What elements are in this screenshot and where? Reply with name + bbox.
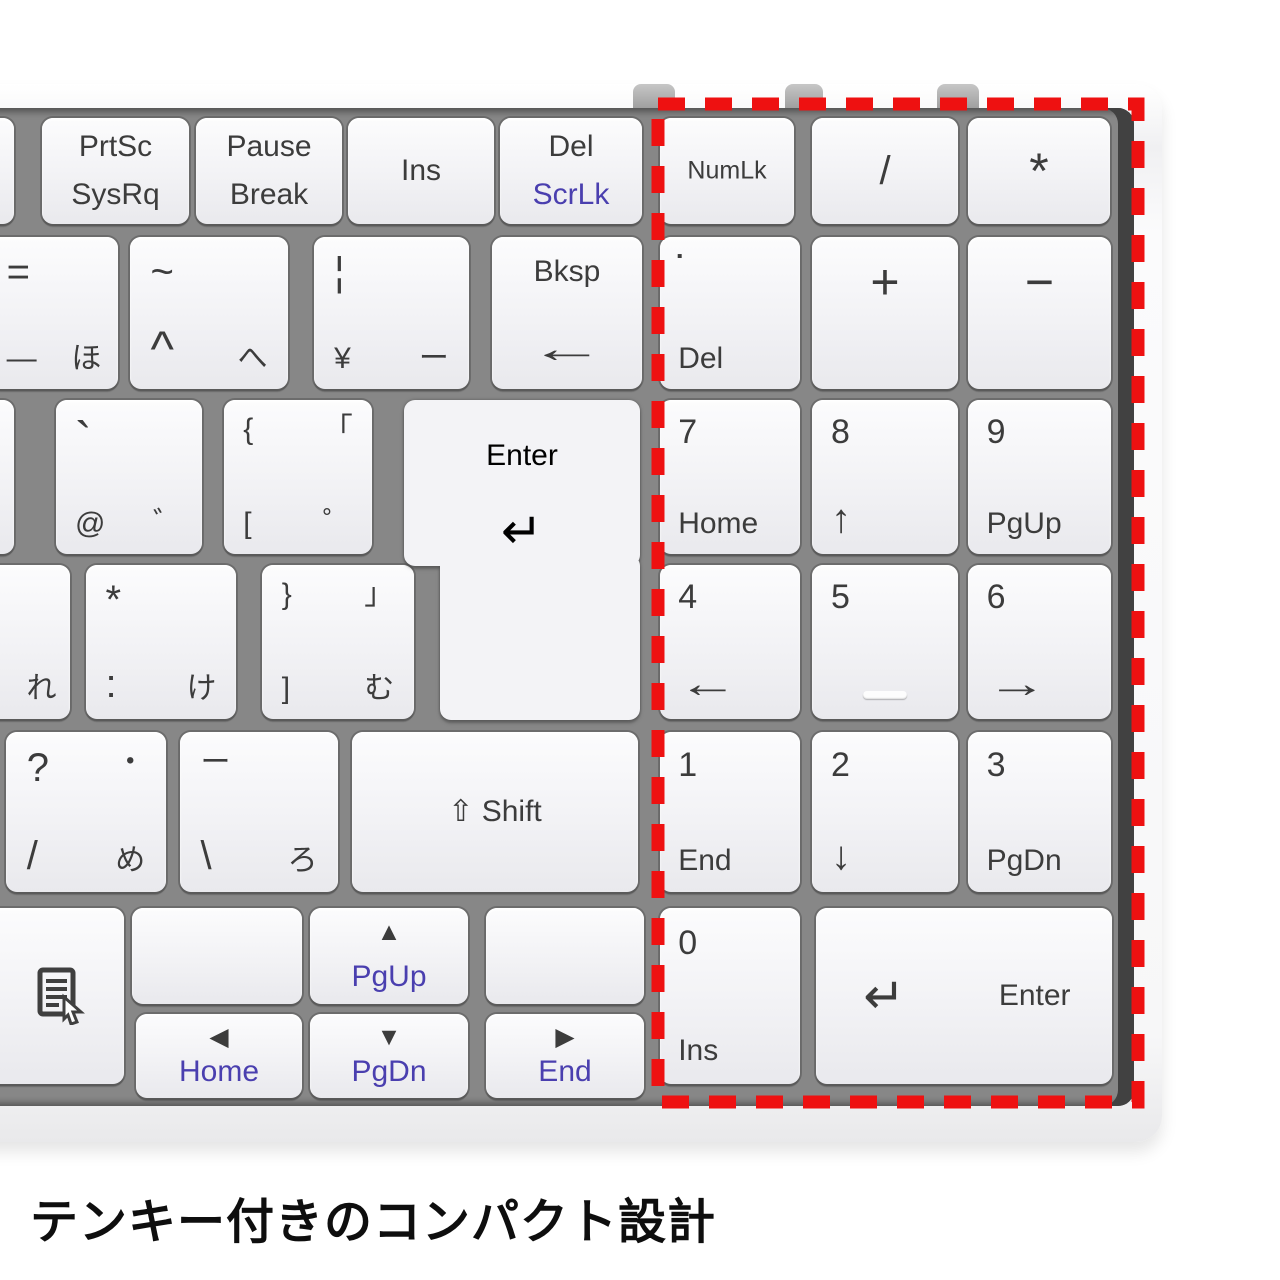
key-del-scrlk: DelScrLk	[500, 118, 642, 224]
key-label: ^	[151, 324, 174, 374]
key-label: Bksp	[534, 257, 601, 287]
key-label: *	[1029, 146, 1048, 196]
key-np-minus: −	[968, 237, 1111, 389]
key-label: Ins	[678, 1036, 718, 1066]
key-label: ]	[282, 674, 290, 704]
key-blank-right	[486, 908, 644, 1004]
key-np-6: →6	[968, 565, 1111, 719]
key-label: ←	[529, 329, 605, 369]
key-label: ・	[115, 748, 145, 778]
key-at-dakuten: `@゛	[56, 400, 202, 554]
enter-key-part: Enter↵	[404, 400, 640, 566]
key-bracket-open: {「[゜	[224, 400, 372, 554]
key-caret-he: ~^へ	[130, 237, 288, 389]
key-label: Break	[230, 180, 308, 210]
key-label: Del	[548, 132, 593, 162]
key-np-enter: ↵Enter	[816, 908, 1112, 1084]
key-label: =	[7, 252, 30, 292]
key-label: ?	[27, 748, 49, 788]
key-np-multiply: *	[968, 118, 1110, 224]
key-label: →	[987, 664, 1047, 704]
key-label: Enter	[999, 981, 1071, 1011]
key-label: ゛	[153, 509, 183, 539]
key-label: ↑	[831, 499, 851, 539]
key-np-7: 7Home	[660, 400, 800, 554]
key-menu	[0, 908, 124, 1084]
caption: テンキー付きのコンパクト設計	[30, 1182, 716, 1252]
key-label: 8	[831, 415, 850, 449]
key-label: Ins	[401, 156, 441, 186]
key-label: End	[538, 1057, 591, 1087]
keyboard-photo: PrtScSysRqPauseBreakInsDelScrLk=—ほ~^へ¦¥ー…	[0, 0, 1280, 1280]
key-label: /	[27, 836, 38, 876]
key-label: Home	[179, 1057, 259, 1087]
key-label: 0	[678, 926, 697, 960]
key-np-2: 2↓	[812, 732, 958, 892]
key-label: [	[243, 509, 251, 539]
key-label: Enter	[486, 441, 558, 471]
context-menu-icon	[35, 967, 87, 1025]
key-label: ー	[419, 344, 449, 374]
key-label: }	[282, 580, 292, 610]
key-numlk: NumLk	[660, 118, 794, 224]
key-ins: Ins	[348, 118, 494, 224]
key-np-9: 9PgUp	[968, 400, 1111, 554]
key-ro: ー\ろ	[180, 732, 338, 892]
key-label: 5	[831, 580, 850, 614]
key-left-home: ◀Home	[136, 1014, 302, 1098]
key-yen-bar: ¦¥ー	[314, 237, 469, 389]
key-bracket-close: }」]む	[262, 565, 414, 719]
key-label: PgDn	[987, 846, 1062, 876]
key-label: ScrLk	[533, 180, 610, 210]
key-label: ←	[678, 664, 738, 704]
key-label: ろ	[287, 846, 317, 876]
key-label: め	[115, 846, 145, 876]
key-question-me: ?・/め	[6, 732, 166, 892]
key-edge-sliver-top	[0, 118, 14, 224]
top-edge-tab	[785, 84, 823, 111]
key-label: @	[75, 509, 105, 539]
key-label: \	[201, 836, 212, 876]
key-label: ▶	[555, 1025, 574, 1050]
key-label: ¦	[334, 252, 344, 292]
key-label: {	[243, 415, 253, 445]
key-label: Del	[678, 344, 723, 374]
key-label: ◀	[209, 1025, 228, 1050]
key-label: `	[75, 415, 92, 465]
key-blank-left	[132, 908, 302, 1004]
key-np-divide: /	[812, 118, 958, 224]
top-edge-tab	[937, 84, 979, 111]
enter-key-part	[440, 555, 640, 720]
key-label: ー	[201, 748, 231, 778]
top-edge-tab	[633, 84, 675, 111]
key-label: ↵	[501, 506, 543, 556]
key-edge-sliver-mid	[0, 400, 14, 554]
key-label: ~	[151, 252, 174, 292]
key-label: Pause	[226, 132, 311, 162]
key-label: Home	[678, 509, 758, 539]
key-label: け	[187, 674, 217, 704]
key-label: 4	[678, 580, 697, 614]
key-minus-ho: =—ほ	[0, 237, 118, 389]
key-label: 7	[678, 415, 697, 449]
key-label: PgUp	[351, 962, 426, 992]
key-label: −	[1025, 257, 1054, 307]
key-label: ▲	[377, 920, 402, 945]
key-pause-break: PauseBreak	[196, 118, 342, 224]
key-label: :	[106, 664, 117, 704]
key-label: PrtSc	[79, 132, 152, 162]
key-label: ほ	[71, 344, 101, 374]
key-label: 1	[678, 748, 697, 782]
key-label: SysRq	[71, 180, 159, 210]
key-label: 6	[987, 580, 1006, 614]
key-enter-main: Enter↵	[404, 400, 640, 720]
key-re: れ	[0, 565, 70, 719]
key-np-4: ←4	[660, 565, 800, 719]
key-label: へ	[237, 344, 267, 374]
key-label: NumLk	[687, 159, 766, 184]
key-label: 2	[831, 748, 850, 782]
key-label: +	[870, 257, 899, 307]
key-label: End	[678, 846, 731, 876]
key-label: ⇧ Shift	[448, 797, 542, 827]
key-shift: ⇧ Shift	[352, 732, 638, 892]
key-label: ↵	[863, 971, 905, 1021]
key-label: む	[364, 674, 394, 704]
key-label: PgDn	[351, 1057, 426, 1087]
key-label: 「	[323, 415, 353, 445]
key-label: *	[106, 580, 122, 620]
key-label: —	[7, 344, 37, 374]
key-colon-ke: *:け	[86, 565, 236, 719]
key-bksp: Bksp←	[492, 237, 642, 389]
key-np-plus: +	[812, 237, 958, 389]
key-np-del: ▪Del	[660, 237, 800, 389]
key-label	[863, 691, 907, 699]
key-label: ¥	[334, 344, 351, 374]
key-label: れ	[26, 674, 56, 704]
key-label: 3	[987, 748, 1006, 782]
key-prtsc-sysrq: PrtScSysRq	[42, 118, 189, 224]
key-up-pgup: ▲PgUp	[310, 908, 468, 1004]
key-label: 」	[364, 580, 394, 610]
key-np-0: 0Ins	[660, 908, 800, 1084]
key-label: ▪	[677, 249, 683, 265]
key-np-5: 5	[812, 565, 958, 719]
key-label: /	[879, 151, 890, 191]
key-label: PgUp	[987, 509, 1062, 539]
key-np-3: 3PgDn	[968, 732, 1111, 892]
key-right-end: ▶End	[486, 1014, 644, 1098]
key-down-pgdn: ▼PgDn	[310, 1014, 468, 1098]
key-label: ▼	[377, 1025, 402, 1050]
key-label: ゜	[323, 509, 353, 539]
key-label: ↓	[831, 836, 851, 876]
key-label: 9	[987, 415, 1006, 449]
key-np-1: 1End	[660, 732, 800, 892]
key-np-8: 8↑	[812, 400, 958, 554]
